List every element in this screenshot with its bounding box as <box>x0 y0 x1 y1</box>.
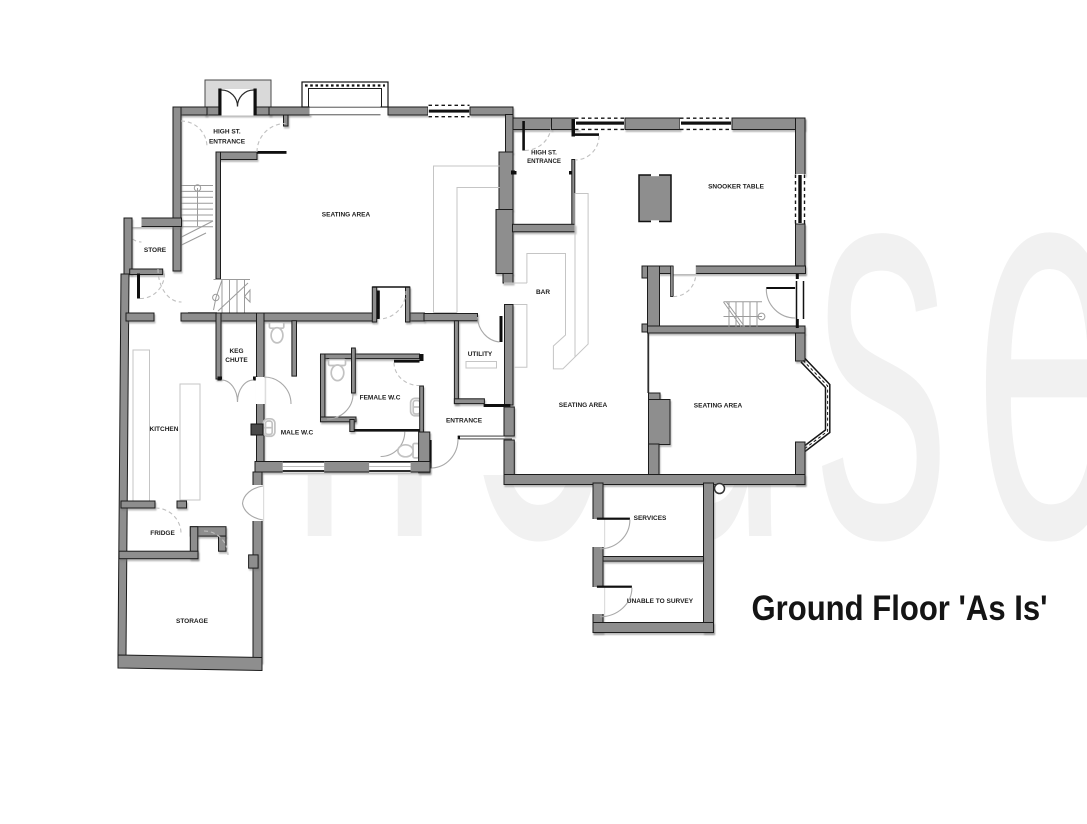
svg-text:ENTRANCE: ENTRANCE <box>209 139 246 146</box>
svg-text:SEATING AREA: SEATING AREA <box>694 403 743 410</box>
svg-text:SNOOKER TABLE: SNOOKER TABLE <box>708 184 765 191</box>
svg-text:KEG: KEG <box>229 348 243 355</box>
svg-text:UNABLE TO SURVEY: UNABLE TO SURVEY <box>627 598 694 605</box>
svg-text:UTILITY: UTILITY <box>468 351 493 358</box>
svg-text:FRIDGE: FRIDGE <box>150 530 175 537</box>
svg-text:BAR: BAR <box>536 289 550 296</box>
svg-text:HIGH ST.: HIGH ST. <box>531 150 557 157</box>
svg-text:ENTRANCE: ENTRANCE <box>446 418 483 425</box>
svg-text:STORAGE: STORAGE <box>176 618 209 625</box>
svg-text:Ground Floor 'As Is': Ground Floor 'As Is' <box>752 589 1048 628</box>
svg-text:FEMALE W.C: FEMALE W.C <box>360 395 401 402</box>
svg-text:ENTRANCE: ENTRANCE <box>527 158 561 165</box>
svg-text:SEATING AREA: SEATING AREA <box>559 402 608 409</box>
svg-text:MALE W.C: MALE W.C <box>281 430 314 437</box>
svg-text:CHUTE: CHUTE <box>225 357 248 364</box>
svg-text:HIGH ST.: HIGH ST. <box>213 129 241 136</box>
svg-text:KITCHEN: KITCHEN <box>150 426 179 433</box>
svg-text:SEATING AREA: SEATING AREA <box>322 212 371 219</box>
svg-text:STORE: STORE <box>144 247 167 254</box>
svg-text:SERVICES: SERVICES <box>634 515 667 522</box>
